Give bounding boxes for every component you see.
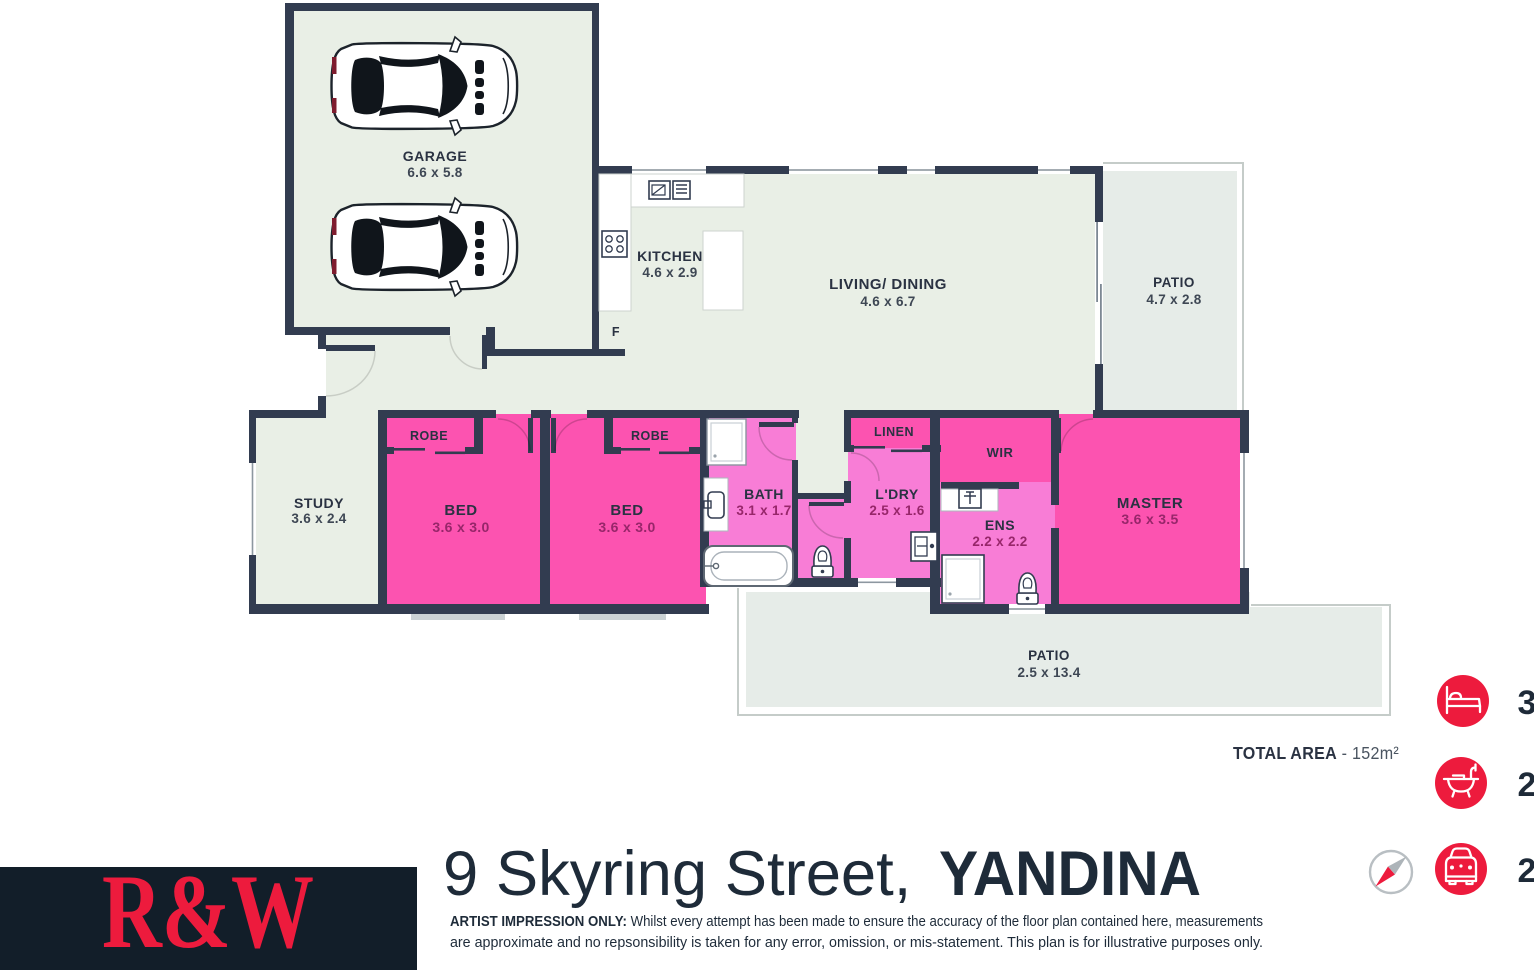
svg-text:9 Skyring Street, YANDINA: 9 Skyring Street, YANDINA [443,839,1201,909]
svg-text:ARTIST IMPRESSION ONLY: Whilst: ARTIST IMPRESSION ONLY: Whilst every att… [450,914,1263,930]
svg-text:are approximate and no repsons: are approximate and no repsonsibility is… [450,935,1263,951]
